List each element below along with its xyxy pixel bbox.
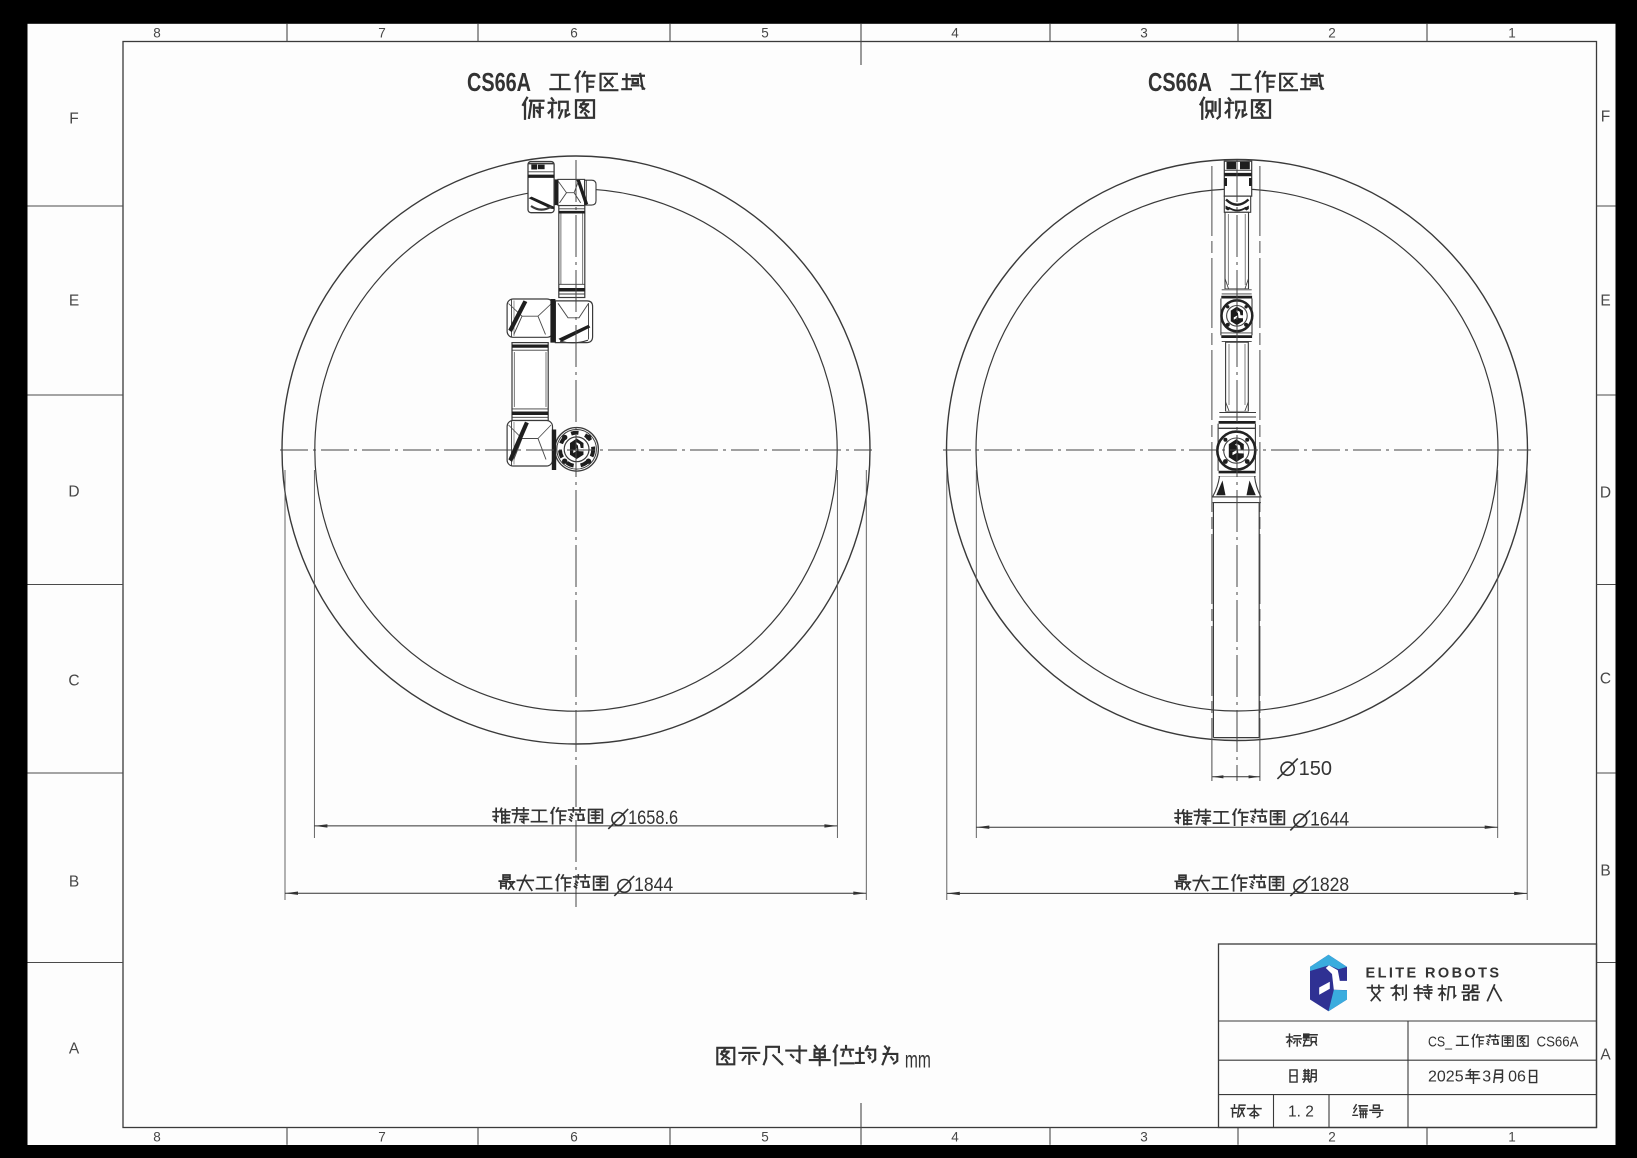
svg-text:CS66A: CS66A [1537, 1035, 1579, 1051]
svg-text:E: E [69, 293, 79, 310]
svg-text:8: 8 [153, 1130, 161, 1145]
svg-text:ELITE ROBOTS: ELITE ROBOTS [1366, 966, 1502, 982]
svg-text:F: F [69, 111, 78, 128]
svg-text:2025: 2025 [1428, 1069, 1464, 1086]
svg-text:CS66A: CS66A [1148, 69, 1212, 97]
svg-text:mm: mm [905, 1047, 931, 1073]
svg-text:3: 3 [1140, 1130, 1148, 1145]
svg-text:E: E [1600, 293, 1610, 310]
svg-text:A: A [1600, 1047, 1611, 1064]
svg-text:D: D [68, 484, 79, 501]
svg-text:5: 5 [761, 26, 769, 41]
svg-text:CS_: CS_ [1428, 1035, 1453, 1051]
svg-text:06: 06 [1508, 1069, 1526, 1086]
svg-text:7: 7 [378, 1130, 386, 1145]
svg-text:6: 6 [570, 26, 578, 41]
svg-text:5: 5 [761, 1130, 769, 1145]
svg-text:A: A [69, 1041, 80, 1058]
svg-text:6: 6 [570, 1130, 578, 1145]
svg-text:4: 4 [951, 26, 959, 41]
svg-text:1828: 1828 [1310, 874, 1349, 896]
svg-text:3: 3 [1140, 26, 1148, 41]
svg-text:1844: 1844 [634, 874, 673, 896]
svg-text:F: F [1601, 109, 1610, 126]
svg-text:D: D [1600, 485, 1611, 502]
svg-text:8: 8 [153, 26, 161, 41]
svg-text:1658.6: 1658.6 [628, 807, 678, 829]
svg-text:1644: 1644 [1310, 809, 1349, 831]
svg-text:CS66A: CS66A [467, 69, 531, 97]
svg-text:7: 7 [378, 26, 386, 41]
svg-text:4: 4 [951, 1130, 959, 1145]
svg-text:150: 150 [1299, 758, 1332, 780]
svg-text:1. 2: 1. 2 [1288, 1104, 1314, 1121]
svg-text:C: C [68, 673, 79, 690]
svg-text:1: 1 [1508, 1130, 1516, 1145]
svg-text:3: 3 [1482, 1069, 1491, 1086]
svg-text:B: B [69, 874, 79, 891]
svg-text:B: B [1600, 863, 1610, 880]
svg-text:2: 2 [1328, 1130, 1336, 1145]
svg-text:C: C [1600, 671, 1611, 688]
svg-text:1: 1 [1508, 26, 1516, 41]
svg-text:2: 2 [1328, 26, 1336, 41]
